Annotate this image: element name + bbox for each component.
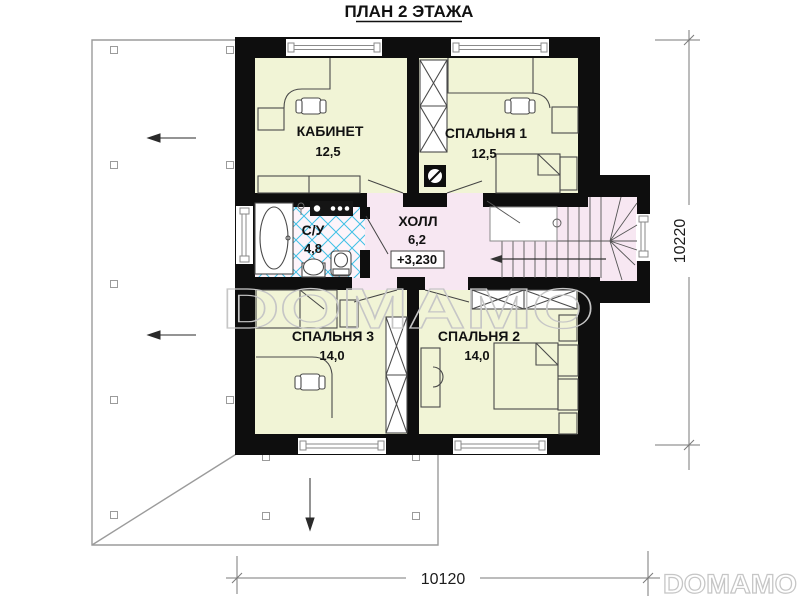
bedroom2-area: 14,0 <box>464 348 489 363</box>
office-chair <box>296 98 326 114</box>
plan-title: ПЛАН 2 ЭТАЖА <box>345 2 474 22</box>
bedroom3-window <box>298 438 386 454</box>
bathroom-window <box>236 206 253 264</box>
bathroom-label: С/У <box>302 222 325 238</box>
vent-shaft <box>424 165 446 187</box>
height-dimension: 10220 <box>672 219 689 264</box>
bedroom1-chair <box>505 98 535 114</box>
bedroom3-chair <box>295 374 325 390</box>
bedroom1-window <box>451 39 549 56</box>
stairs-window <box>636 214 651 261</box>
bathroom-area: 4,8 <box>304 241 322 256</box>
hall-area: 6,2 <box>408 232 426 247</box>
office-window <box>286 39 382 56</box>
hall-elevation-value: +3,230 <box>397 252 437 267</box>
bedroom1-area: 12,5 <box>471 146 496 161</box>
floor-plan: КАБИНЕТ 12,5 СПАЛЬНЯ 1 12,5 СПАЛЬНЯ 3 14… <box>0 0 800 600</box>
bedroom2-window <box>453 438 547 454</box>
bathtub <box>255 203 293 274</box>
washer-counter <box>310 201 353 216</box>
toilet <box>331 251 351 276</box>
stair-void <box>490 207 557 241</box>
hall-label: ХОЛЛ <box>398 213 437 229</box>
width-dimension: 10120 <box>421 571 466 588</box>
watermark-center: DOMAMO <box>222 277 594 341</box>
hall-elevation: +3,230 <box>391 251 444 268</box>
office-label: КАБИНЕТ <box>297 123 364 139</box>
bedroom1-wardrobe <box>420 60 447 152</box>
plan-title-text: ПЛАН 2 ЭТАЖА <box>345 2 474 21</box>
bedroom1-label: СПАЛЬНЯ 1 <box>445 125 527 141</box>
washbasin <box>302 259 325 277</box>
bedroom3-area: 14,0 <box>319 348 344 363</box>
office-area: 12,5 <box>315 144 340 159</box>
watermark-corner: DOMAMO <box>663 569 797 599</box>
